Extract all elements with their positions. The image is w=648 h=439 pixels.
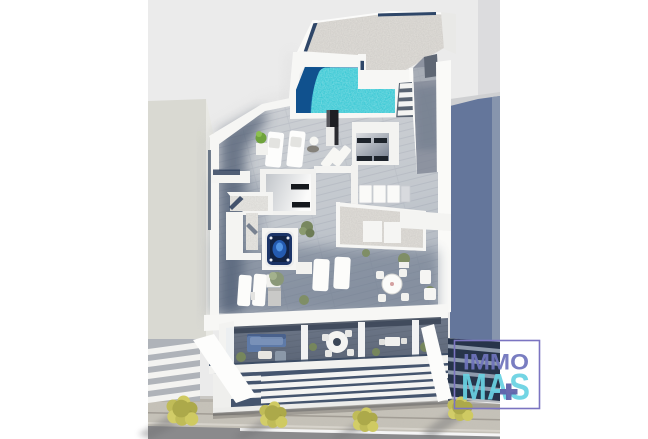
svg-text:MAS: MAS	[461, 367, 530, 408]
